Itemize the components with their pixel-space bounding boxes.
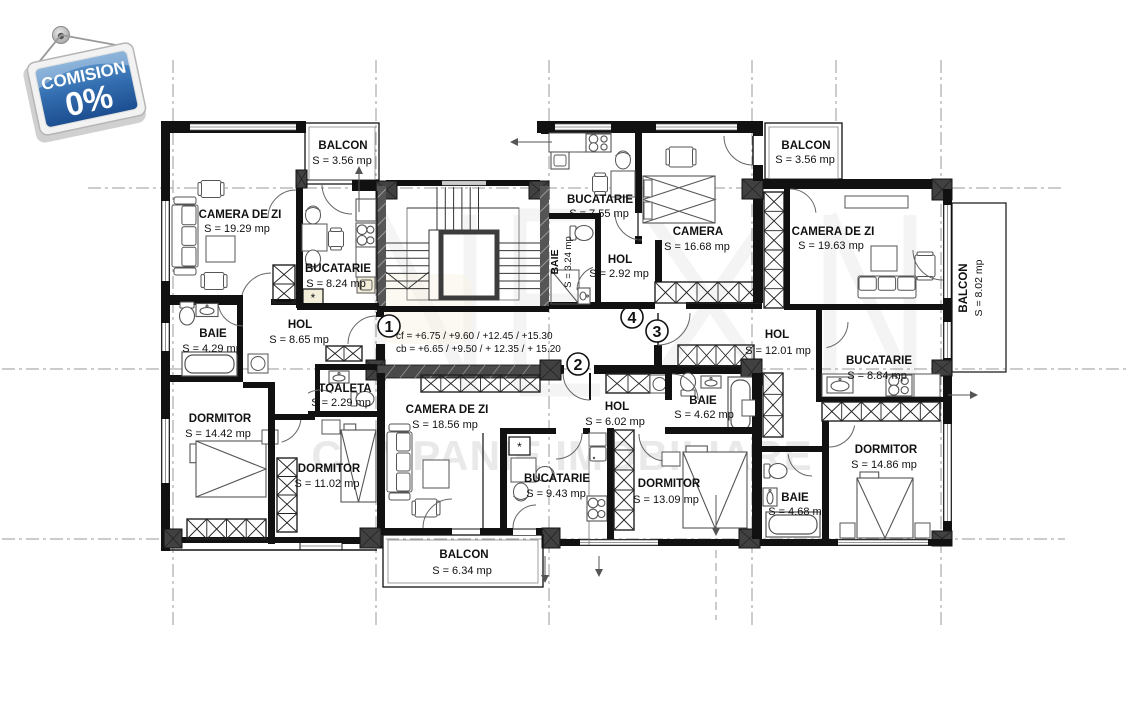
- svg-text:4: 4: [628, 310, 637, 327]
- svg-text:CAMERA: CAMERA: [673, 226, 723, 238]
- svg-text:BAIE: BAIE: [549, 249, 561, 274]
- svg-text:S = 4.68 mp: S = 4.68 mp: [768, 506, 828, 518]
- svg-text:S = 19.29 mp: S = 19.29 mp: [204, 223, 270, 235]
- svg-text:CAMERA DE ZI: CAMERA DE ZI: [199, 209, 282, 221]
- svg-text:3: 3: [653, 324, 662, 341]
- svg-text:S = 3.56 mp: S = 3.56 mp: [312, 155, 372, 167]
- svg-text:S = 4.62 mp: S = 4.62 mp: [674, 409, 734, 421]
- svg-text:S = 11.02 mp: S = 11.02 mp: [295, 478, 360, 490]
- svg-text:S = 16.68 mp: S = 16.68 mp: [664, 241, 730, 253]
- svg-text:S = 3.24 mp: S = 3.24 mp: [563, 236, 574, 288]
- svg-text:S = 8.02 mp: S = 8.02 mp: [973, 259, 985, 316]
- svg-text:CAMERA DE ZI: CAMERA DE ZI: [792, 226, 875, 238]
- svg-text:S = 8.65 mp: S = 8.65 mp: [269, 334, 329, 346]
- svg-text:BALCON: BALCON: [781, 140, 830, 152]
- svg-text:DORMITOR: DORMITOR: [638, 478, 701, 490]
- svg-text:S = 4.29 mp: S = 4.29 mp: [182, 343, 242, 355]
- svg-text:HOL: HOL: [288, 319, 312, 331]
- svg-text:*: *: [311, 291, 316, 305]
- svg-text:S = 2.92 mp: S = 2.92 mp: [589, 268, 649, 280]
- svg-text:DORMITOR: DORMITOR: [189, 413, 252, 425]
- svg-text:S = 18.56 mp: S = 18.56 mp: [412, 419, 478, 431]
- svg-text:BUCATARIE: BUCATARIE: [305, 263, 371, 275]
- svg-text:S = 8.84 mp: S = 8.84 mp: [847, 370, 907, 382]
- svg-text:HOL: HOL: [608, 254, 632, 266]
- svg-text:S = 2.29 mp: S = 2.29 mp: [311, 397, 371, 409]
- svg-text:*: *: [517, 440, 522, 454]
- svg-text:HOL: HOL: [765, 329, 789, 341]
- svg-text:BUCATARIE: BUCATARIE: [846, 355, 912, 367]
- svg-text:BUCATARIE: BUCATARIE: [567, 194, 633, 206]
- svg-text:BALCON: BALCON: [318, 140, 367, 152]
- svg-text:BAIE: BAIE: [781, 492, 809, 504]
- svg-text:DORMITOR: DORMITOR: [855, 444, 918, 456]
- svg-text:S = 3.56 mp: S = 3.56 mp: [775, 154, 835, 166]
- svg-text:2: 2: [574, 357, 583, 374]
- svg-text:cf = +6.75 / +9.60 / +12.45 /: cf = +6.75 / +9.60 / +12.45 / +15.30: [396, 331, 553, 342]
- svg-text:S = 8.24 mp: S = 8.24 mp: [306, 278, 366, 290]
- svg-text:S = 19.63 mp: S = 19.63 mp: [798, 240, 864, 252]
- svg-text:TOALETA: TOALETA: [318, 383, 371, 395]
- svg-text:S = 9.43 mp: S = 9.43 mp: [526, 488, 586, 500]
- svg-text:S = 6.34 mp: S = 6.34 mp: [432, 565, 492, 577]
- svg-text:BUCATARIE: BUCATARIE: [524, 473, 590, 485]
- svg-text:S = 14.86 mp: S = 14.86 mp: [851, 459, 917, 471]
- svg-text:S = 6.02 mp: S = 6.02 mp: [585, 416, 645, 428]
- svg-text:BAIE: BAIE: [199, 328, 227, 340]
- svg-text:S = 12.01 mp: S = 12.01 mp: [745, 345, 811, 357]
- svg-text:S = 13.09 mp: S = 13.09 mp: [633, 494, 699, 506]
- svg-text:cb = +6.65 / +9.50 / + 12.35 /: cb = +6.65 / +9.50 / + 12.35 / + 15.20: [396, 344, 561, 355]
- svg-text:BAIE: BAIE: [689, 395, 717, 407]
- svg-text:1: 1: [385, 319, 394, 336]
- svg-text:HOL: HOL: [605, 401, 629, 413]
- svg-text:CAMERA DE ZI: CAMERA DE ZI: [406, 404, 489, 416]
- svg-text:BALCON: BALCON: [958, 263, 970, 312]
- svg-text:DORMITOR: DORMITOR: [298, 463, 361, 475]
- svg-text:S = 14.42 mp: S = 14.42 mp: [185, 428, 251, 440]
- svg-text:BALCON: BALCON: [439, 549, 488, 561]
- svg-text:S = 7.55 mp: S = 7.55 mp: [569, 208, 629, 220]
